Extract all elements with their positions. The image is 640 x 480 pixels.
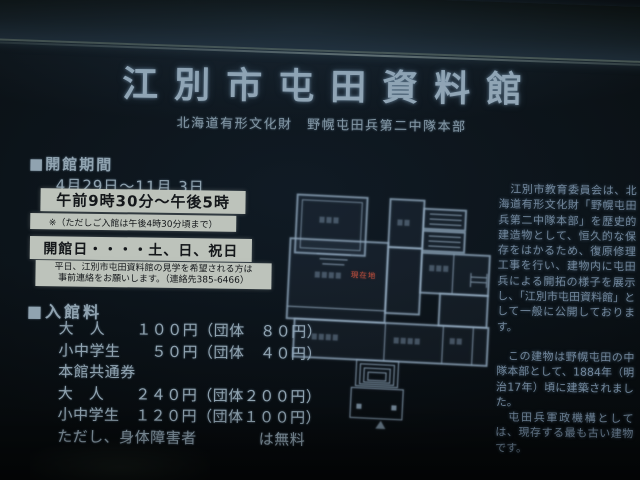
you-are-here-marker: 現在地 xyxy=(351,269,377,281)
photo-of-museum-sign: 江別市屯田資料館 北海道有形文化財 野幌屯田兵第二中隊本部 ■開館期間 4月29… xyxy=(0,0,640,480)
bottom-left-glare xyxy=(30,438,210,480)
description-paragraph-2: この建物は野幌屯田の中隊本部として、1884年（明治17年）頃に建築されました。 xyxy=(496,348,635,411)
floor-plan-drawing xyxy=(259,179,511,448)
sign-subtitle: 北海道有形文化財 野幌屯田兵第二中隊本部 xyxy=(2,110,640,138)
opening-period-heading: ■開館期間 xyxy=(29,153,113,175)
sign-title: 江別市屯田資料館 xyxy=(2,54,640,115)
description-paragraph-1: 江別市教育委員会は、北海道有形文化財「野幌屯田兵第二中隊本部」を歴史的建造物とし… xyxy=(497,181,637,336)
weekday-note-line2: 事前連絡をお願いします。（連絡先385-6466） xyxy=(58,273,249,287)
last-entry-note-box: ※（ただしご入館は午後4時30分頃まで） xyxy=(30,213,236,232)
open-days-box: 開館日・・・・土、日、祝日 xyxy=(30,236,252,262)
opening-hours-box: 午前9時30分～午後5時 xyxy=(40,188,245,214)
museum-description-text: 江別市教育委員会は、北海道有形文化財「野幌屯田兵第二中隊本部」を歴史的建造物とし… xyxy=(495,181,637,471)
floor-plan-map: 現在地 xyxy=(259,179,511,448)
weekday-visit-note-box: 平日、江別市屯田資料館の見学を希望される方は 事前連絡をお願いします。（連絡先3… xyxy=(35,260,271,289)
description-paragraph-3: 屯田兵軍政機構としては、現存する最も古い建物です。 xyxy=(495,410,634,458)
sign-board: 江別市屯田資料館 北海道有形文化財 野幌屯田兵第二中隊本部 ■開館期間 4月29… xyxy=(0,0,640,480)
